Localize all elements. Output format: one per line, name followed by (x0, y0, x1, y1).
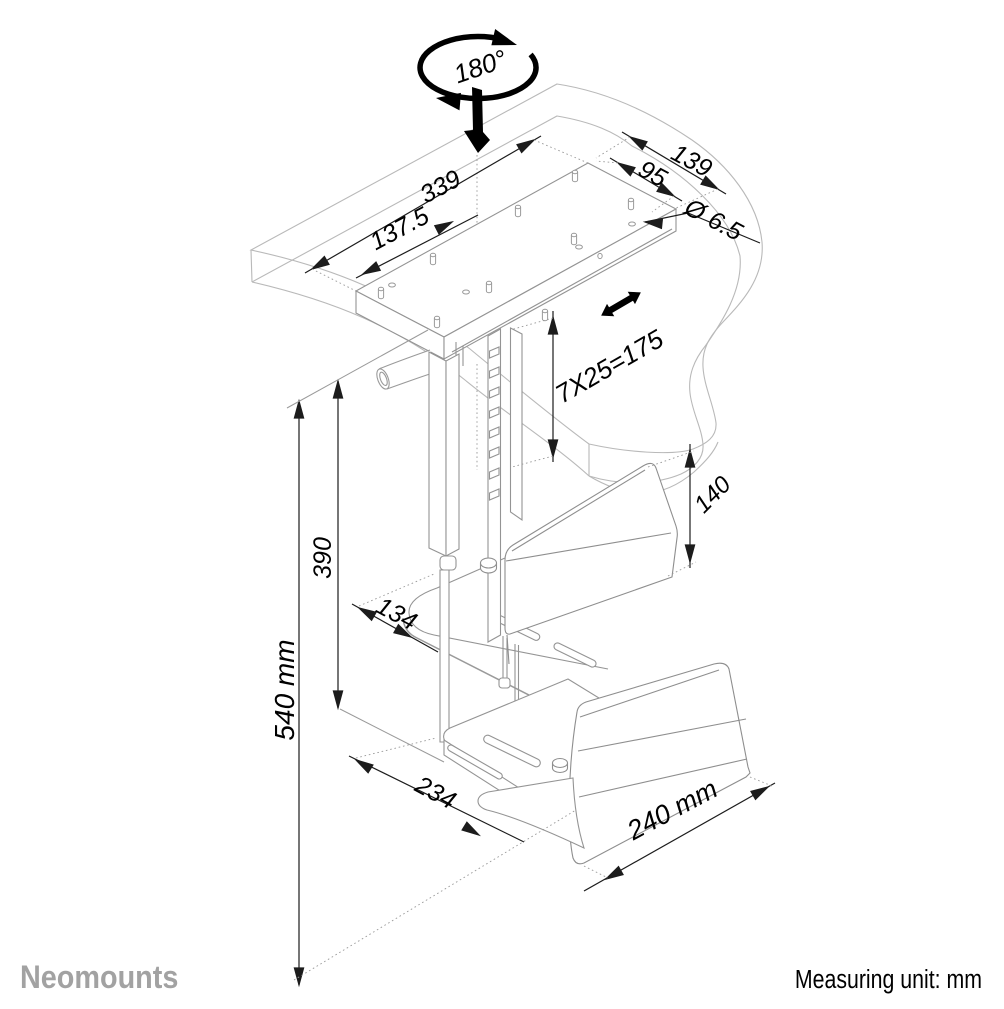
svg-text:Measuring unit: mm: Measuring unit: mm (795, 965, 982, 995)
svg-text:390: 390 (309, 537, 337, 579)
svg-text:540 mm: 540 mm (269, 639, 300, 740)
svg-text:Neomounts: Neomounts (20, 960, 178, 996)
